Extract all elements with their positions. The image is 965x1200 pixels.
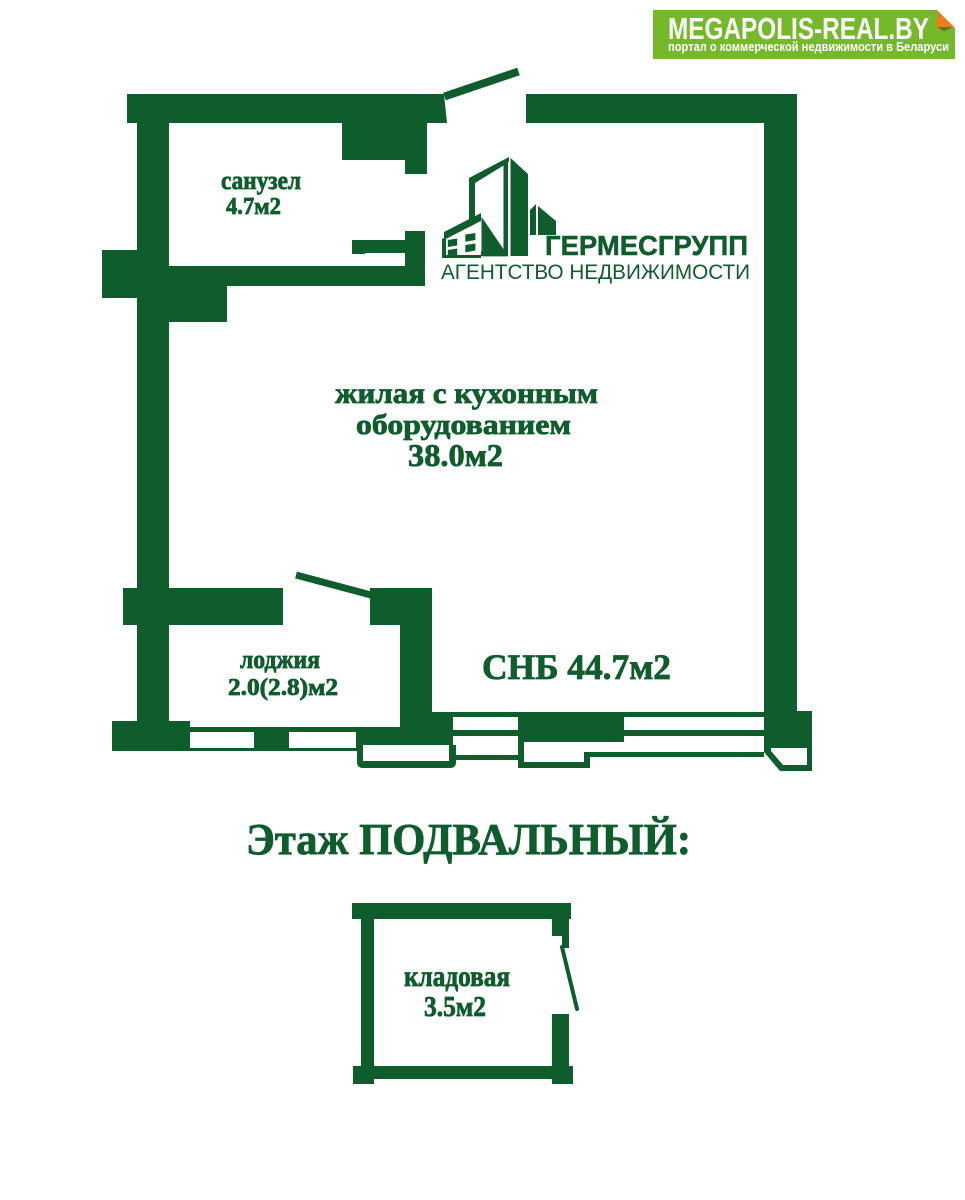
svg-text:жилая с кухонным: жилая с кухонным bbox=[335, 377, 598, 410]
svg-text:кладовая: кладовая bbox=[404, 960, 510, 993]
svg-text:3.5м2: 3.5м2 bbox=[424, 991, 486, 1023]
svg-text:лоджия: лоджия bbox=[240, 645, 320, 674]
svg-text:ГЕРМЕСГРУПП: ГЕРМЕСГРУПП bbox=[545, 230, 748, 261]
svg-text:портал о коммерческой недвижим: портал о коммерческой недвижимости в Бел… bbox=[668, 40, 949, 54]
svg-text:АГЕНТСТВО НЕДВИЖИМОСТИ: АГЕНТСТВО НЕДВИЖИМОСТИ bbox=[441, 261, 750, 284]
svg-text:4.7м2: 4.7м2 bbox=[226, 194, 281, 220]
svg-text:2.0(2.8)м2: 2.0(2.8)м2 bbox=[228, 675, 338, 701]
svg-text:38.0м2: 38.0м2 bbox=[408, 437, 503, 473]
svg-text:Этаж ПОДВАЛЬНЫЙ:: Этаж ПОДВАЛЬНЫЙ: bbox=[246, 815, 691, 864]
svg-text:санузел: санузел bbox=[221, 166, 301, 195]
svg-text:СНБ 44.7м2: СНБ 44.7м2 bbox=[482, 647, 671, 687]
